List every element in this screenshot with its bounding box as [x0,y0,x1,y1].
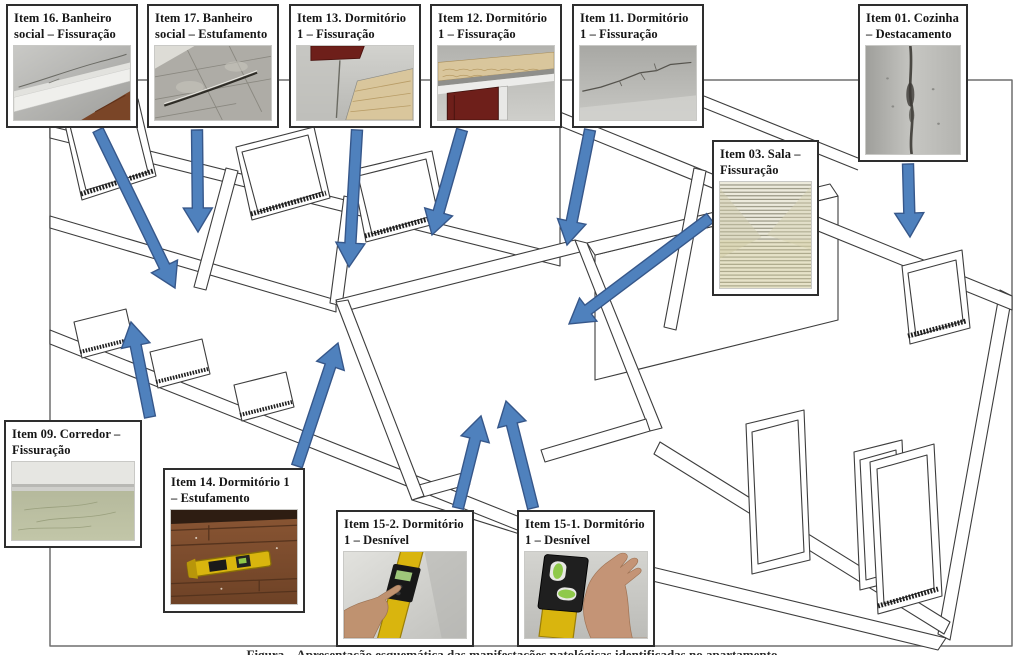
callout-item-13: Item 13. Dormitório 1 – Fissuração [289,4,421,128]
photo-item-14 [170,509,298,605]
callout-label: Item 12. Dormitório 1 – Fissuração [432,6,560,44]
photo-item-15-1 [524,551,648,639]
arrow-item-15-1 [498,401,539,509]
arrow-item-17 [183,130,212,232]
apartment-window [74,309,134,358]
photo-item-01 [865,45,961,155]
apartment-wall [541,419,650,462]
callout-label: Item 13. Dormitório 1 – Fissuração [291,6,419,44]
callout-item-12: Item 12. Dormitório 1 – Fissuração [430,4,562,128]
photo-item-15-2 [343,551,467,639]
callout-label: Item 17. Banheiro social – Estufamento [149,6,277,44]
callout-label: Item 14. Dormitório 1 – Estufamento [165,470,303,508]
arrow-item-15-2 [453,416,490,509]
callout-item-09: Item 09. Corredor – Fissuração [4,420,142,548]
apartment-wall [938,290,1012,640]
apartment-window [870,444,942,614]
apartment-window [234,372,294,421]
apartment-door [746,410,810,574]
photo-item-16 [13,45,131,121]
photo-item-03 [719,181,812,289]
callout-item-03: Item 03. Sala – Fissuração [712,140,819,296]
callout-label: Item 11. Dormitório 1 – Fissuração [574,6,702,44]
callout-item-11: Item 11. Dormitório 1 – Fissuração [572,4,704,128]
callout-label: Item 01. Cozinha – Destacamento [860,6,966,44]
apartment-window [902,250,970,344]
photo-item-11 [579,45,697,121]
callout-label: Item 16. Banheiro social – Fissuração [8,6,136,44]
apartment-wall [336,240,580,312]
callout-label: Item 09. Corredor – Fissuração [6,422,140,460]
callout-label: Item 15-1. Dormitório 1 – Desnível [519,512,653,550]
photo-item-12 [437,45,555,121]
arrow-item-11 [558,129,596,245]
apartment-window [236,127,330,220]
callout-label: Item 15-2. Dormitório 1 – Desnível [338,512,472,550]
photo-item-09 [11,461,135,541]
apartment-wall [50,216,336,312]
callout-item-14: Item 14. Dormitório 1 – Estufamento [163,468,305,613]
photo-item-13 [296,45,414,121]
figure-caption-clipped: Figura – Apresentação esquemática das ma… [60,647,964,655]
callout-item-17: Item 17. Banheiro social – Estufamento [147,4,279,128]
arrow-item-01 [895,164,924,237]
callout-item-15-2: Item 15-2. Dormitório 1 – Desnível [336,510,474,647]
callout-item-16: Item 16. Banheiro social – Fissuração [6,4,138,128]
photo-item-17 [154,45,272,121]
callout-item-15-1: Item 15-1. Dormitório 1 – Desnível [517,510,655,647]
callout-label: Item 03. Sala – Fissuração [714,142,817,180]
apartment-window [150,339,210,388]
callout-item-01: Item 01. Cozinha – Destacamento [858,4,968,162]
